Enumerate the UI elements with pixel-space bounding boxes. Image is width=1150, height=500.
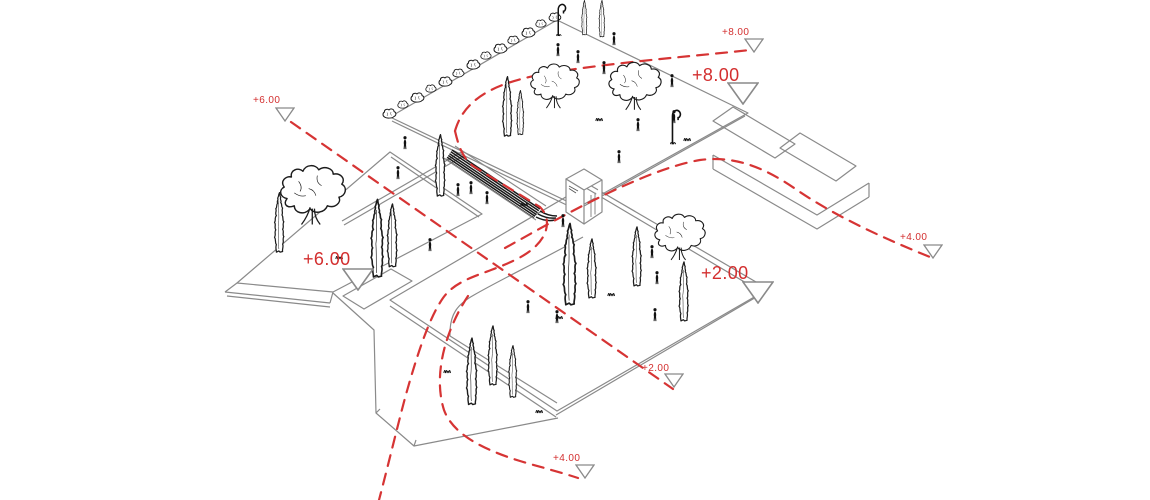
cypress-tree-icon (435, 135, 445, 196)
grass-tuft-icon (596, 119, 603, 122)
cypress-tree-icon (488, 326, 497, 385)
person-figure-icon (602, 61, 605, 74)
left-terrace-outline (237, 152, 482, 292)
right-chevron-ramp (713, 155, 869, 229)
slab-edge-thickness (333, 293, 558, 446)
person-figure-icon (555, 310, 558, 323)
shrub-icon (411, 93, 424, 102)
person-figure-icon (670, 74, 673, 87)
axonometric-site-diagram: +8.00 +6.00 +2.00 +8.00 +6.00 +4.00 +2.0… (0, 0, 1150, 500)
shrub-icon (522, 28, 535, 37)
person-figure-icon (396, 166, 399, 179)
cypress-tree-icon (466, 338, 476, 404)
shrub-icon (467, 60, 480, 69)
person-figure-icon (526, 300, 529, 313)
shrub-icon (398, 101, 408, 108)
cypress-tree-icon (632, 227, 641, 286)
shrub-icon (536, 20, 546, 27)
person-figure-icon (672, 110, 675, 123)
cypress-tree-icon (503, 77, 512, 137)
grass-tuft-icon (684, 139, 691, 142)
stair-side-wall (342, 151, 465, 225)
person-figure-icon (653, 308, 656, 321)
cypress-tree-icon (275, 193, 284, 253)
deciduous-tree-icon (655, 214, 705, 260)
cypress-tree-icon (509, 346, 517, 398)
grass-tuft-icon (336, 257, 343, 260)
right-upper-plate (780, 133, 856, 181)
kiosk-building (566, 169, 602, 224)
person-figure-icon (561, 214, 564, 227)
shrub-icon (549, 13, 561, 21)
shrub-icon (508, 36, 519, 44)
left-terrace-parapet (391, 157, 479, 217)
shrub-icon (426, 85, 436, 92)
cypress-tree-icon (679, 262, 688, 321)
cypress-tree-icon (517, 90, 524, 134)
shrub-icon (453, 69, 464, 77)
person-figure-icon (485, 191, 488, 204)
street-lamp-icon (670, 110, 680, 144)
person-figure-icon (403, 136, 406, 149)
person-figure-icon (655, 271, 658, 284)
person-figure-icon (636, 118, 639, 131)
right-ramp-plate (713, 107, 795, 158)
cypress-tree-icon (563, 224, 576, 305)
deciduous-tree-icon (531, 64, 580, 108)
person-figure-icon (556, 43, 559, 56)
person-figure-icon (576, 50, 579, 63)
deciduous-tree-icon (609, 62, 661, 109)
grass-tuft-icon (608, 294, 615, 297)
cypress-tree-icon (387, 204, 397, 267)
shrub-icon (494, 44, 507, 53)
person-figure-icon (456, 183, 459, 196)
grass-tuft-icon (536, 411, 543, 414)
contour-plus6-to-plus2 (291, 122, 673, 389)
deciduous-tree-icon (281, 166, 346, 225)
person-figure-icon (617, 150, 620, 163)
grass-tuft-icon (444, 371, 451, 374)
person-figure-icon (469, 181, 472, 194)
cypress-tree-icon (587, 239, 596, 298)
vegetation (275, 0, 706, 413)
cypress-tree-icon (582, 0, 587, 35)
shrub-icon (383, 109, 396, 118)
shrub-icon (481, 52, 491, 59)
cypress-tree-icon (371, 199, 383, 277)
person-figure-icon (650, 245, 653, 258)
shrub-icon (439, 77, 452, 86)
person-figure-icon (612, 32, 615, 45)
contour-plus8 (455, 50, 750, 131)
person-figure-icon (428, 238, 431, 251)
contour-plus4-bottom (440, 296, 578, 478)
site-linework-drawing (0, 0, 1150, 500)
cypress-tree-icon (599, 0, 605, 36)
